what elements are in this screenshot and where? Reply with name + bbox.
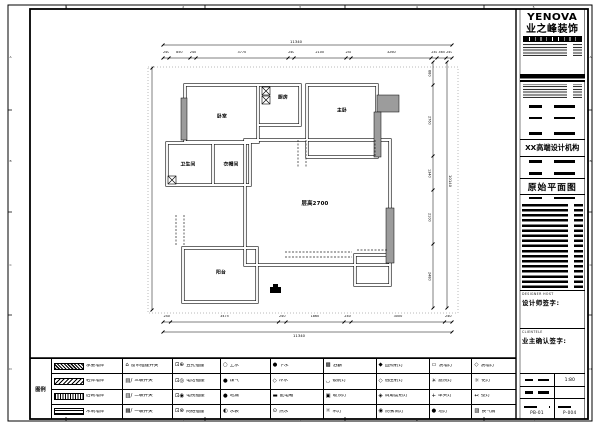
legend-label: 低压射灯 (385, 379, 403, 384)
legend-item: ○上水 (221, 359, 270, 373)
dim-right-total: 10140 (448, 175, 452, 187)
dim-segment-label: 1860 (286, 315, 344, 321)
blank-cell (554, 387, 585, 399)
legend-item: ☼花灯 (472, 373, 516, 388)
wash-wall-light-icon: ◇ (474, 363, 478, 368)
logo-box: YENOVA 业之峰装饰 (520, 9, 585, 75)
dimension-lines (151, 44, 454, 334)
dim-segment-label: 1340 (426, 156, 432, 190)
load-bearing-wall-swatch (54, 363, 84, 370)
legend-label: 电话插座 (186, 379, 204, 384)
logo-company-name: 业之峰装饰 (520, 24, 585, 35)
logo-address-text (523, 44, 582, 56)
entry-door-symbol (270, 284, 281, 293)
field-rows-2 (520, 130, 585, 139)
floorplan-walls (167, 85, 390, 302)
dim-bottom-total: 11340 (293, 334, 305, 338)
legend-item: ◆直照射灯 (377, 359, 429, 373)
legend-label: 水表 (230, 410, 239, 415)
legend-column: 承重墙体轻体墙体后砌墙体木制墙体 (52, 359, 122, 419)
legend-label: 庭院灯 (438, 379, 452, 384)
legend-label: 一联开关 (134, 410, 152, 415)
single-head-light-icon: + (432, 394, 437, 399)
legend-item: 承重墙体 (52, 359, 122, 373)
room-label-master-bedroom: 主卧 (337, 107, 347, 114)
legend-label: 承重墙体 (86, 364, 104, 369)
legend-columns: 承重墙体轻体墙体后砌墙体木制墙体⌂窗帘插座开关▤/三联开关▥/二联开关▦/一联开… (52, 359, 516, 419)
frame-mark: 1 (8, 5, 125, 9)
logo-wordmark: YENOVA (520, 13, 585, 23)
designer-signature-label: 设计师签字: (520, 296, 585, 309)
legend-label: 吊灯 (332, 410, 341, 415)
fog-proof-downlight-icon: ◉ (379, 409, 384, 414)
legend-item: ▨换气扇 (472, 404, 516, 419)
design-org-label: XX高端设计机构 (525, 143, 579, 153)
legend-column: ○上水●煤气●地漏◐水表 (220, 359, 270, 419)
room-label-balcony: 阳台 (216, 269, 226, 276)
legend-column: ▩浴霸◡镜前灯▣吸顶灯☼吊灯 (323, 359, 376, 419)
designer-signature-space (520, 309, 585, 328)
legend-label: 壁灯 (481, 394, 490, 399)
legend-item: ▦/一联开关 (123, 404, 172, 419)
frame-mark: B (589, 109, 593, 213)
drawing-title-box: 原始平面图 (520, 178, 585, 195)
legend-item: ●煤气 (221, 373, 270, 388)
legend-column: ⌂窗帘插座开关▤/三联开关▥/二联开关▦/一联开关 (122, 359, 172, 419)
frame-mark: B (9, 109, 13, 213)
legend-label: 二联开关 (134, 394, 152, 399)
five-hole-socket-icon: ⊡⊕ (175, 363, 184, 368)
bath-heater-icon: ▩ (326, 363, 331, 368)
legend-label: 后砌墙体 (86, 394, 104, 399)
triple-switch-icon: ▤/ (125, 379, 132, 384)
date-cell (520, 387, 554, 399)
frame-mark: C (589, 213, 593, 317)
dim-segment-label: 2100 (294, 51, 346, 57)
legend-label: 花灯 (481, 379, 490, 384)
frame-mark: 2 (125, 5, 242, 9)
wood-wall-swatch (54, 408, 84, 415)
legend-label: 配电箱 (280, 394, 294, 399)
legend-table: 图例 承重墙体轻体墙体后砌墙体木制墙体⌂窗帘插座开关▤/三联开关▥/二联开关▦/… (30, 358, 516, 419)
legend-label: 直照射灯 (385, 364, 403, 369)
frame-mark: D (589, 317, 593, 421)
legend-item: ●下水 (271, 359, 323, 373)
scale-label-cell (520, 374, 554, 387)
single-switch-icon: ▦/ (125, 409, 132, 414)
legend-item: ▬配电箱 (271, 389, 323, 404)
dim-segment-label: 2100 (426, 190, 432, 244)
plan-extent-box (148, 67, 458, 313)
sheet-number: PB-01 (530, 410, 544, 415)
dim-segment-label: 3000 (351, 315, 444, 321)
ceiling-light-icon: ▣ (326, 394, 331, 399)
legend-column: ▭洗墙灯☀庭院灯+单头灯●地灯 (429, 359, 472, 419)
notes-text-1 (520, 82, 585, 100)
legend-label: 上水 (230, 364, 239, 369)
legend-label: 吸顶灯 (333, 394, 347, 399)
legend-item: ⊙热水 (271, 404, 323, 419)
dim-segment-label: 880 (426, 62, 432, 85)
room-label-living-height: 层高2700 (302, 199, 329, 207)
dim-segment-label: 2480 (426, 244, 432, 308)
network-socket-icon: ⊡⊗ (175, 409, 184, 414)
legend-item: ◇冷水 (271, 373, 323, 388)
legend-item: ◡镜前灯 (324, 373, 376, 388)
mirror-light-icon: ◡ (326, 379, 331, 384)
legend-label: 木制墙体 (86, 410, 104, 415)
distribution-box-icon: ▬ (273, 394, 278, 399)
frame-mark: D (9, 317, 13, 421)
drawing-title: 原始平面图 (528, 180, 577, 193)
curtain-switch-icon: ⌂ (125, 363, 128, 368)
legend-item: ⊡⊗网络插座 (173, 404, 220, 419)
pendant-light-icon: ☼ (326, 409, 331, 414)
water-meter-icon: ◐ (223, 409, 228, 414)
scale-value-cell: 1:80 (554, 374, 585, 387)
legend-label: 换气扇 (482, 410, 496, 415)
field-rows-1 (520, 100, 585, 130)
frame-marks-top: 12345 (8, 5, 592, 9)
tv-socket-icon: ⊡◉ (175, 394, 184, 399)
legend-item: ◈调角度射灯 (377, 389, 429, 404)
legend-item: ⊡◉电视插座 (173, 389, 220, 404)
drain-icon: ● (273, 363, 278, 368)
logo-tagline-bar (523, 36, 582, 43)
design-org-box: XX高端设计机构 (520, 139, 585, 157)
dim-segment-label: 240 (445, 315, 452, 321)
garden-light-icon: ☀ (432, 379, 437, 384)
title-table: 1:80 PB-01 P-004 (520, 373, 585, 419)
room-label-bedroom: 卧室 (217, 113, 227, 120)
legend-column: ⊡⊕五孔插座⊡◎电话插座⊡◉电视插座⊡⊗网络插座 (172, 359, 220, 419)
legend-label: 热水 (279, 410, 288, 415)
divider-bars (520, 75, 585, 82)
dim-segment-label: 850 (169, 51, 190, 57)
legend-item: ⊡⊕五孔插座 (173, 359, 220, 373)
water-supply-icon: ○ (223, 363, 228, 368)
legend-label: 电视插座 (186, 394, 204, 399)
legend-item: ↢壁灯 (472, 389, 516, 404)
legend-item: ◇洗墙灯 (472, 359, 516, 373)
dim-segment-label: 3260 (351, 51, 431, 57)
dim-chain-right: 8802760134021002480 (426, 62, 432, 308)
frame-marks-left: ABCD (9, 5, 13, 421)
sheet-no-cell: PB-01 (520, 399, 554, 419)
page-number: P-004 (563, 410, 576, 415)
chandelier-icon: ☼ (474, 379, 479, 384)
client-signature-label: 业主确认签字: (520, 334, 585, 348)
legend-item: ◇低压射灯 (377, 373, 429, 388)
legend-item: ▥/二联开关 (123, 389, 172, 404)
legend-item: 木制墙体 (52, 404, 122, 419)
legend-item: ▤/三联开关 (123, 373, 172, 388)
legend-label: 地灯 (438, 410, 447, 415)
dim-segment-label: 240 (163, 315, 170, 321)
legend-label: 镜前灯 (332, 379, 346, 384)
room-label-closet: 衣帽间 (224, 161, 239, 168)
legend-item: 后砌墙体 (52, 389, 122, 404)
legend-label: 洗墙灯 (481, 364, 495, 369)
legend-label: 三联开关 (134, 379, 152, 384)
legend-item: ▣吸顶灯 (324, 389, 376, 404)
client-signature-space (520, 348, 585, 373)
floor-drain-icon: ● (223, 394, 228, 399)
frame-mark: A (589, 5, 593, 109)
cold-water-icon: ◇ (273, 379, 277, 384)
exhaust-fan-icon: ▨ (474, 409, 479, 414)
dim-segment-label: 3770 (196, 51, 288, 57)
direct-spotlight-icon: ◆ (379, 363, 383, 368)
legend-item: ◐水表 (221, 404, 270, 419)
scale-value: 1:80 (565, 378, 575, 383)
floor-light-icon: ● (432, 409, 437, 414)
legend-column: ◆直照射灯◇低压射灯◈调角度射灯◉防雾筒灯 (376, 359, 429, 419)
frame-marks-right: ABCD (589, 5, 593, 421)
room-label-bathroom: 卫生间 (181, 161, 196, 168)
dim-top-total: 11340 (290, 40, 302, 44)
dim-segment-label: 365 (437, 51, 446, 57)
hot-water-icon: ⊙ (273, 409, 278, 414)
legend-item: ●地灯 (430, 404, 472, 419)
dim-chain-bottom: 240347524018602403000240 (163, 315, 452, 321)
field-rows-4 (520, 170, 585, 178)
double-switch-icon: ▥/ (125, 394, 132, 399)
dim-chain-top: 240850240377024021002403260240365240 (163, 51, 452, 57)
infill-wall-swatch (54, 393, 84, 400)
page-no-cell: P-004 (554, 399, 585, 419)
legend-item: ⊡◎电话插座 (173, 373, 220, 388)
legend-item: ☼吊灯 (324, 404, 376, 419)
legend-side-label: 图例 (30, 359, 52, 419)
legend-item: 轻体墙体 (52, 373, 122, 388)
title-block: YENOVA 业之峰装饰 XX高端设计机构 原始平面图 DESIGNER HOS… (520, 9, 585, 419)
light-wall-swatch (54, 378, 84, 385)
legend-label: 单头灯 (438, 394, 452, 399)
legend-label: 地漏 (230, 394, 239, 399)
adjustable-spotlight-icon: ◈ (379, 394, 383, 399)
dim-segment-label: 2760 (426, 85, 432, 156)
gas-icon: ● (223, 379, 228, 384)
dim-segment-label: 240 (446, 51, 452, 57)
legend-label: 网络插座 (186, 410, 204, 415)
frame-mark: 3 (242, 5, 359, 9)
legend-label: 洗墙灯 (439, 364, 453, 369)
field-rows-3 (520, 157, 585, 170)
legend-label: 轻体墙体 (86, 379, 104, 384)
legend-item: ▭洗墙灯 (430, 359, 472, 373)
legend-item: ●地漏 (221, 389, 270, 404)
notes-block (520, 202, 585, 290)
legend-item: ☀庭院灯 (430, 373, 472, 388)
legend-item: +单头灯 (430, 389, 472, 404)
wall-lamp-icon: ↢ (474, 394, 479, 399)
dim-segment-label: 240 (344, 315, 351, 321)
dim-segment-label: 240 (279, 315, 286, 321)
drawing-sheet: { "sheet": { "frame_marks_top": ["1","2"… (0, 0, 600, 427)
wall-washer-light-icon: ▭ (432, 363, 437, 368)
legend-label: 窗帘插座开关 (131, 364, 159, 369)
legend-label: 调角度射灯 (385, 394, 408, 399)
low-voltage-spotlight-icon: ◇ (379, 379, 383, 384)
legend-label: 五孔插座 (186, 364, 204, 369)
legend-label: 防雾筒灯 (385, 410, 403, 415)
dim-segment-label: 3475 (170, 315, 278, 321)
frame-mark: A (9, 5, 13, 109)
frame-mark: C (9, 213, 13, 317)
legend-label: 煤气 (230, 379, 239, 384)
legend-column: ●下水◇冷水▬配电箱⊙热水 (270, 359, 323, 419)
legend-label: 下水 (279, 364, 288, 369)
room-label-kitchen: 厨房 (278, 94, 288, 101)
legend-label: 冷水 (279, 379, 288, 384)
legend-column: ◇洗墙灯☼花灯↢壁灯▨换气扇 (471, 359, 516, 419)
legend-item: ◉防雾筒灯 (377, 404, 429, 419)
legend-label: 浴霸 (333, 364, 342, 369)
legend-item: ▩浴霸 (324, 359, 376, 373)
frame-mark: 4 (358, 5, 475, 9)
field-rows-5 (520, 195, 585, 202)
legend-item: ⌂窗帘插座开关 (123, 359, 172, 373)
phone-socket-icon: ⊡◎ (175, 379, 184, 384)
